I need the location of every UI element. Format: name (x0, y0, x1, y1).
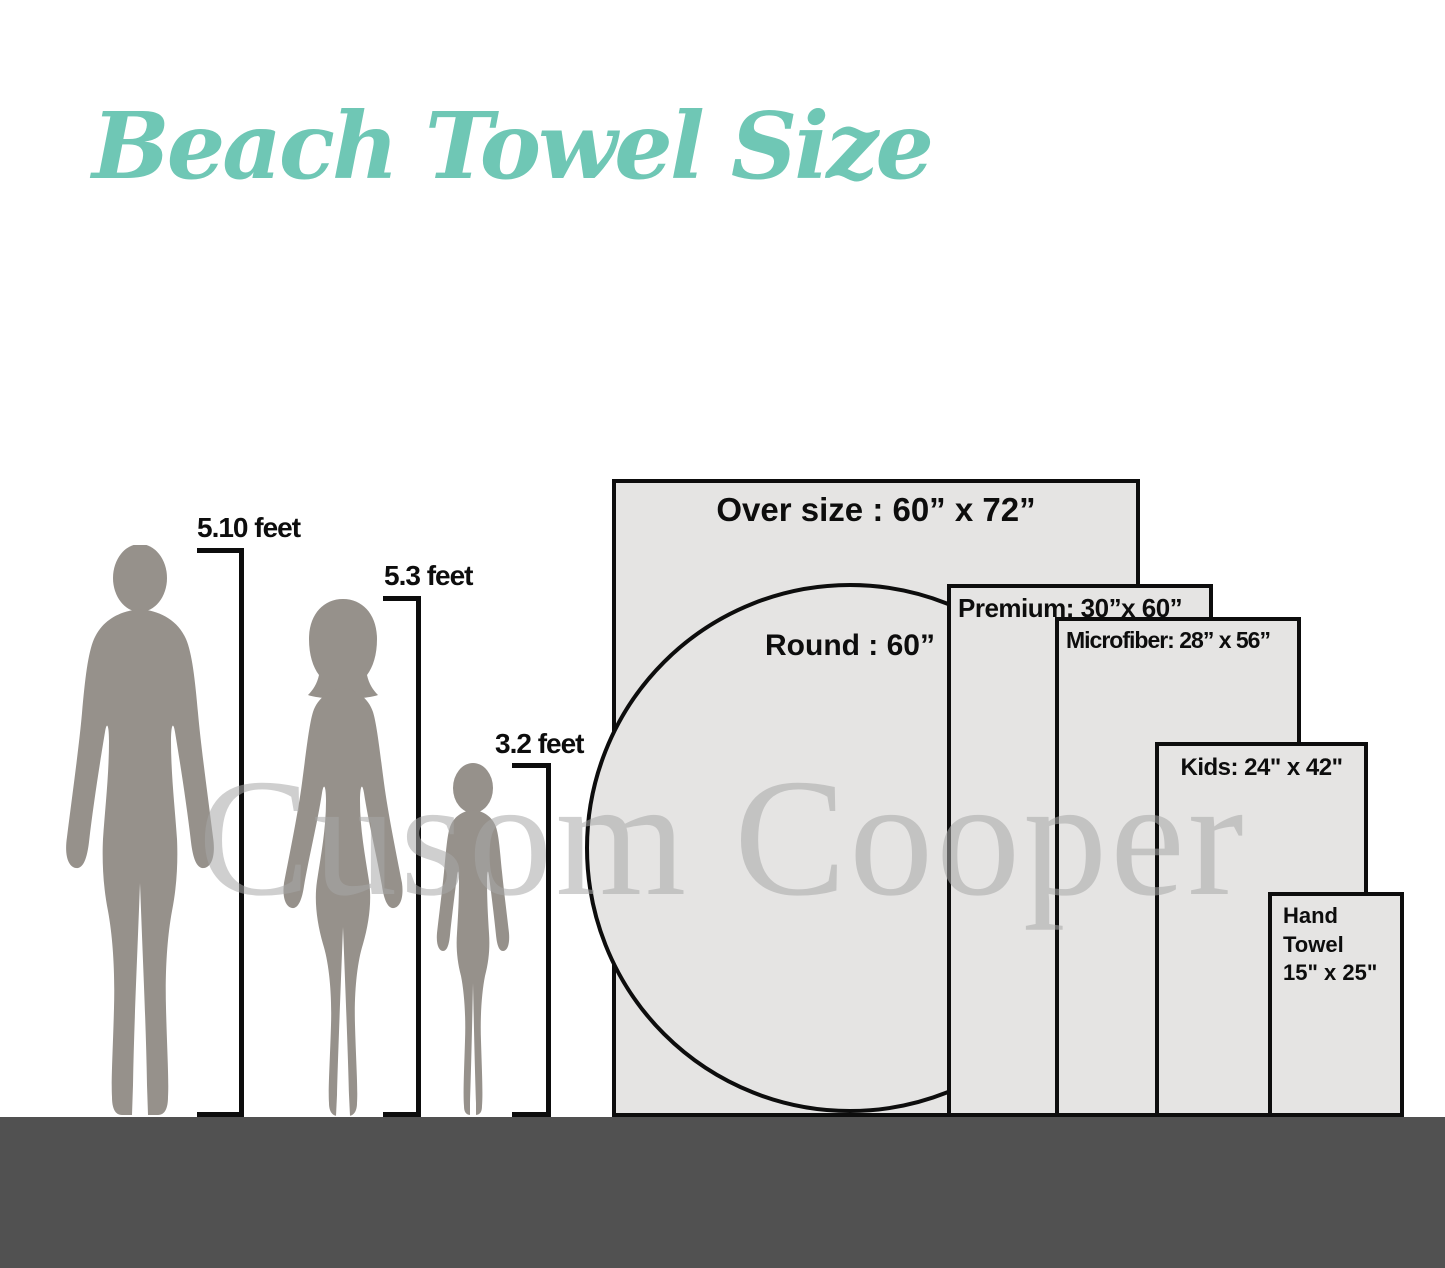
towel-hand: Hand Towel 15" x 25" (1268, 892, 1404, 1117)
man-bracket-top (197, 548, 244, 553)
page-title: Beach Towel Size (92, 96, 931, 197)
towel-hand-label-line1: Hand Towel (1283, 903, 1344, 957)
child-height-label: 3.2 feet (495, 728, 584, 760)
ground-bar (0, 1117, 1445, 1268)
towel-kids-label: Kids: 24" x 42" (1159, 746, 1364, 782)
man-silhouette (45, 545, 235, 1117)
towel-hand-label: Hand Towel 15" x 25" (1272, 896, 1400, 988)
beach-towel-size-infographic: Beach Towel Size 5.10 feet 5.3 feet 3.2 … (0, 0, 1445, 1268)
towel-hand-label-line2: 15" x 25" (1283, 960, 1377, 985)
man-height-label: 5.10 feet (197, 512, 300, 544)
towel-oversize-label: Over size : 60” x 72” (616, 483, 1136, 529)
woman-height-label: 5.3 feet (384, 560, 473, 592)
woman-silhouette (266, 595, 421, 1117)
man-bracket-line (239, 548, 244, 1117)
child-silhouette (428, 763, 518, 1117)
towel-microfiber-label: Microfiber: 28” x 56” (1059, 621, 1297, 654)
child-bracket-line (546, 763, 551, 1117)
woman-bracket-line (416, 596, 421, 1117)
